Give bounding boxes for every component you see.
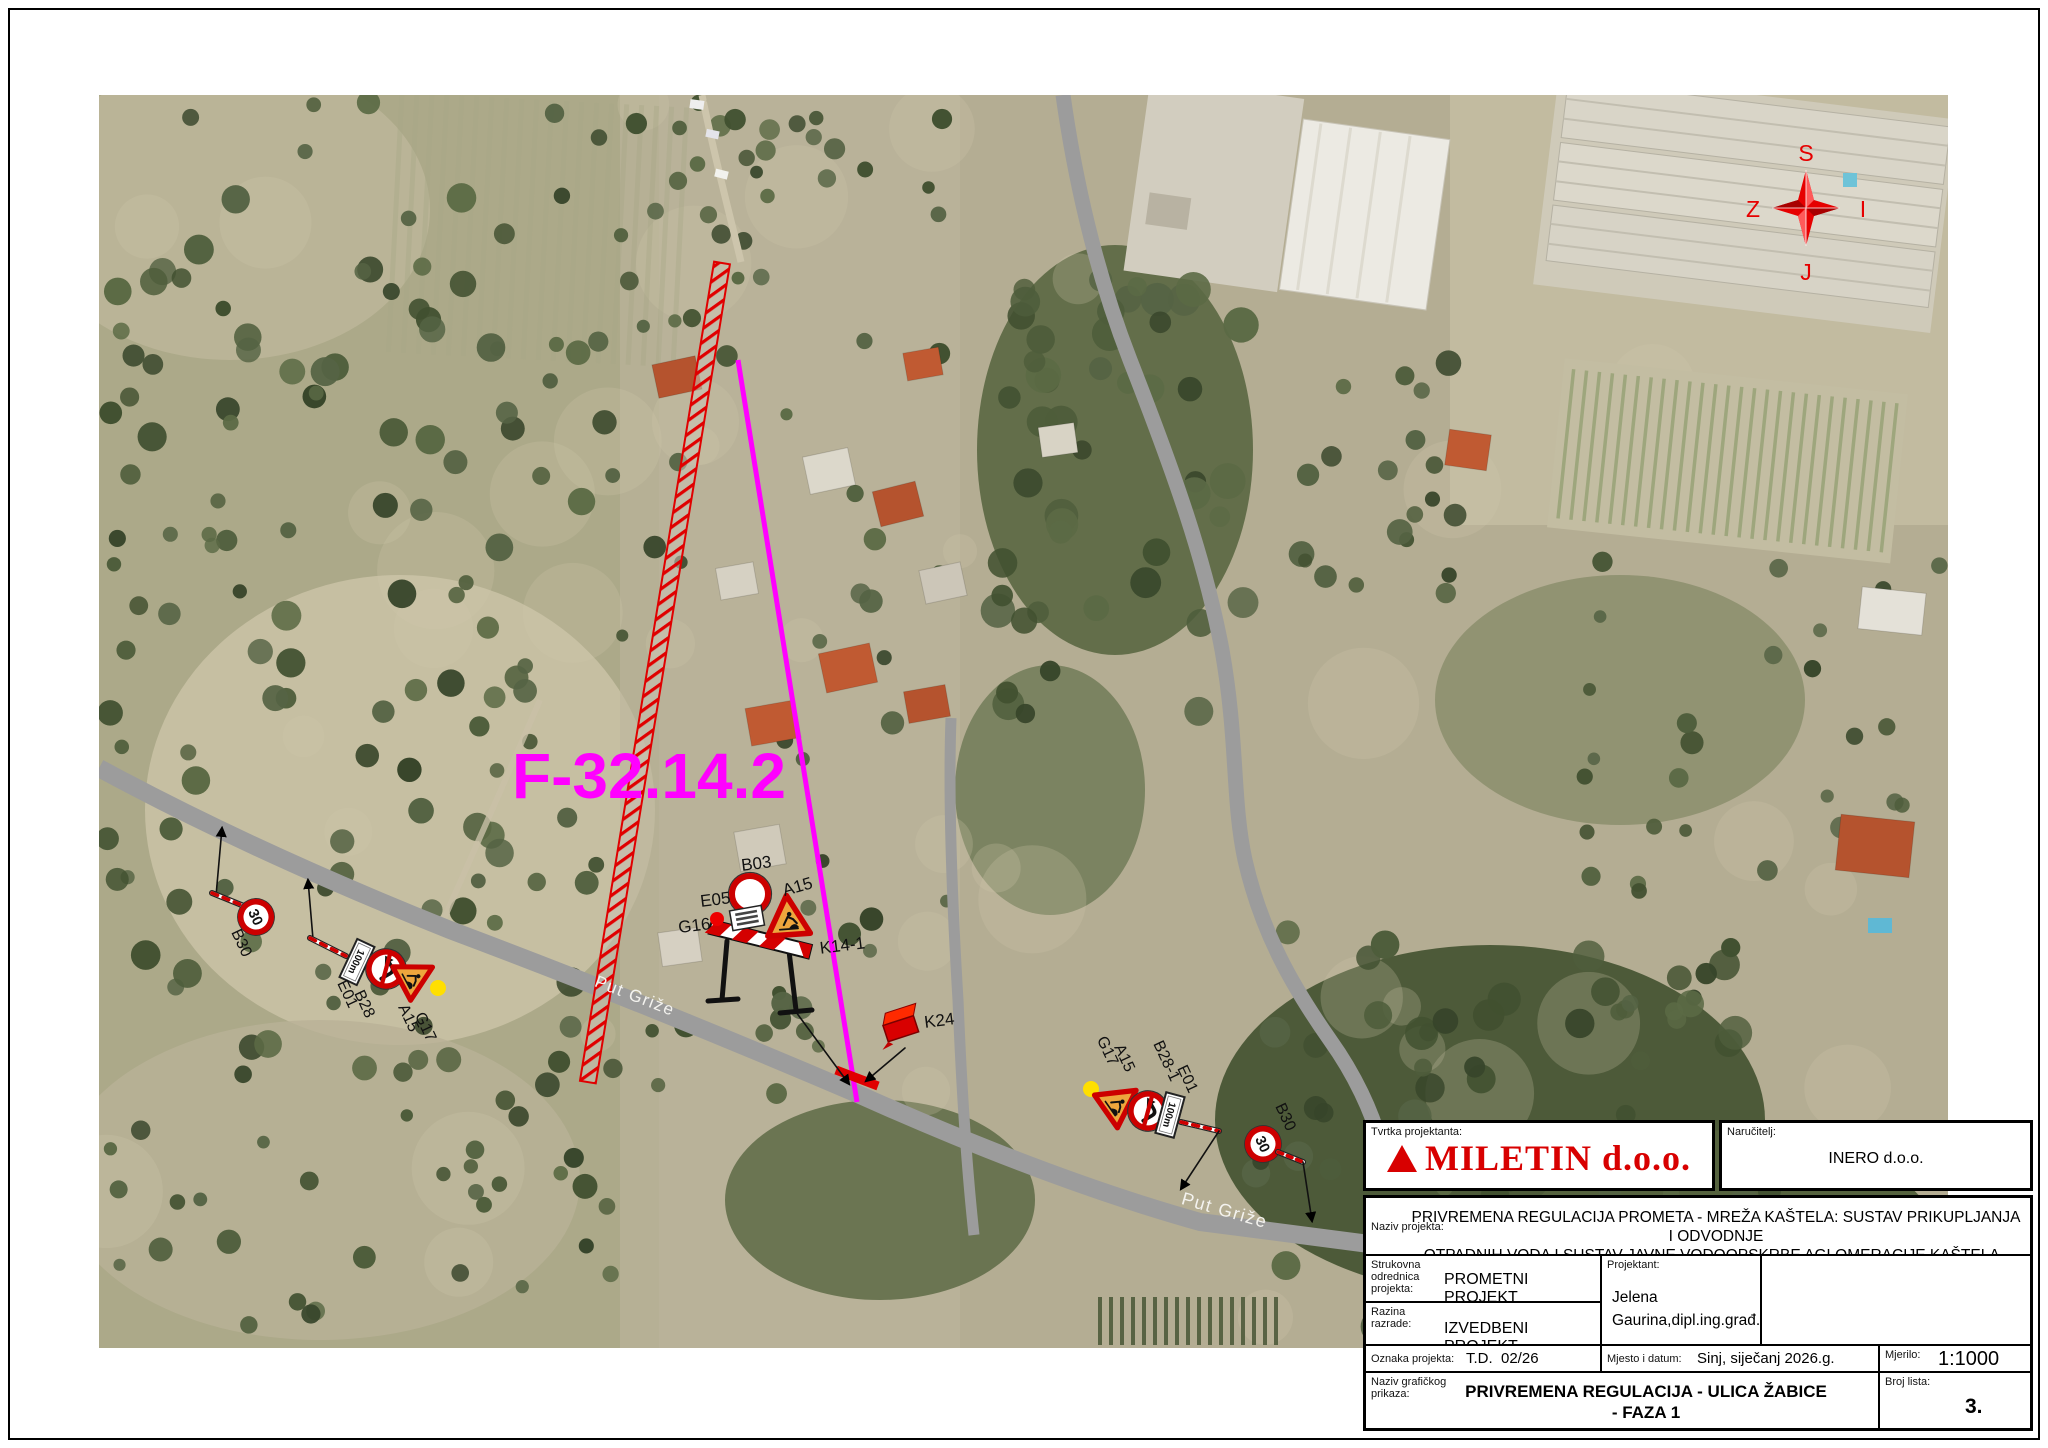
- tree: [1013, 468, 1042, 497]
- tree: [383, 283, 400, 300]
- tree: [1314, 565, 1337, 588]
- design-level-label: Razina razrade:: [1371, 1306, 1431, 1330]
- tree: [1565, 1009, 1594, 1038]
- tree: [300, 1172, 319, 1191]
- tree: [588, 857, 604, 873]
- tree: [1804, 660, 1821, 677]
- tree: [560, 1016, 582, 1038]
- tree: [184, 235, 214, 265]
- tree: [991, 585, 1013, 607]
- client-name: INERO d.o.o.: [1722, 1150, 2030, 1168]
- tree: [490, 763, 505, 778]
- compass-north-label: S: [1798, 140, 1813, 166]
- tree: [309, 386, 324, 401]
- tree: [568, 488, 595, 515]
- tree: [1260, 1017, 1291, 1048]
- tree: [1026, 325, 1054, 353]
- tree: [988, 548, 1018, 578]
- tree: [113, 1259, 125, 1271]
- tree: [436, 1167, 450, 1181]
- tree: [166, 889, 192, 915]
- tree: [1414, 382, 1430, 398]
- tree: [1667, 1010, 1686, 1029]
- tree: [123, 345, 145, 367]
- tree: [138, 422, 167, 451]
- tree: [485, 839, 514, 868]
- tree: [857, 162, 873, 178]
- works-section-label: F-32.14.2: [512, 740, 786, 812]
- tree: [548, 1051, 570, 1073]
- tree: [401, 1109, 413, 1121]
- tree: [1387, 519, 1413, 545]
- tree: [1128, 277, 1147, 296]
- tree: [1223, 307, 1258, 342]
- tree: [528, 873, 546, 891]
- tree: [107, 557, 121, 571]
- tree: [380, 418, 408, 446]
- place-date-value: Sinj, siječanj 2026.g.: [1697, 1350, 1835, 1367]
- tree: [436, 1047, 461, 1072]
- tree: [1441, 567, 1456, 582]
- tree: [712, 225, 731, 244]
- engineer-name-line1: Jelena: [1612, 1286, 1760, 1309]
- tree: [1304, 1096, 1328, 1120]
- tree: [353, 1246, 376, 1269]
- tree: [579, 1238, 594, 1253]
- tree: [645, 1024, 658, 1037]
- tree: [753, 269, 770, 286]
- tree: [931, 206, 947, 222]
- tree: [1083, 595, 1109, 621]
- tree: [1011, 607, 1037, 633]
- tree: [516, 1280, 529, 1293]
- tree: [535, 1072, 560, 1097]
- tree: [1436, 350, 1462, 376]
- drawing-title-line2: - FAZA 1: [1426, 1402, 1866, 1423]
- tree: [1436, 583, 1456, 603]
- tree: [120, 387, 139, 406]
- title-block-main: Naziv projekta: PRIVREMENA REGULACIJA PR…: [1363, 1195, 2033, 1431]
- tree: [172, 268, 192, 288]
- tree: [573, 1174, 598, 1199]
- tree: [419, 316, 445, 342]
- tree: [149, 1238, 173, 1262]
- compass-west-label: Z: [1746, 196, 1760, 222]
- tree: [397, 758, 421, 782]
- tree: [210, 493, 225, 508]
- tree: [1272, 1251, 1301, 1280]
- tree: [248, 639, 273, 664]
- tree: [106, 868, 129, 891]
- tree: [1364, 1001, 1392, 1029]
- tree: [485, 534, 513, 562]
- tree: [131, 940, 161, 970]
- tree: [352, 1056, 377, 1081]
- tree: [1178, 377, 1203, 402]
- tree: [1010, 287, 1040, 317]
- tree: [311, 357, 340, 386]
- tree: [889, 86, 975, 172]
- tree: [464, 1159, 478, 1173]
- tree: [487, 915, 503, 931]
- tree: [543, 373, 558, 388]
- building: [1835, 814, 1914, 877]
- tree: [466, 1140, 485, 1159]
- tree: [1406, 430, 1426, 450]
- sign-label-b03: B03: [740, 852, 772, 875]
- tree: [732, 272, 745, 285]
- tree: [508, 1106, 528, 1126]
- tree: [1677, 713, 1697, 733]
- tree: [408, 798, 434, 824]
- tree: [1588, 753, 1601, 766]
- tree: [549, 337, 564, 352]
- tree: [1894, 798, 1909, 813]
- tree: [469, 716, 489, 736]
- tree: [424, 1228, 493, 1297]
- company-logo: MILETIN d.o.o.: [1425, 1138, 1691, 1178]
- tree: [496, 402, 518, 424]
- tree: [1209, 506, 1230, 527]
- tree: [1764, 646, 1782, 664]
- tree: [131, 1121, 150, 1140]
- tree: [283, 716, 325, 758]
- tree: [140, 268, 167, 295]
- tree: [410, 499, 432, 521]
- engineer-label: Projektant:: [1607, 1259, 1660, 1271]
- tree: [1878, 718, 1895, 735]
- tree: [306, 97, 321, 112]
- tree: [326, 996, 340, 1010]
- tree: [846, 485, 863, 502]
- tree: [330, 829, 354, 853]
- tree: [789, 115, 806, 132]
- sheet-number-value: 3.: [1965, 1395, 1983, 1419]
- tree: [1336, 379, 1351, 394]
- tree: [1696, 963, 1717, 984]
- tree: [217, 1230, 241, 1254]
- tree: [372, 700, 394, 722]
- tree: [1931, 557, 1948, 574]
- tree: [1631, 883, 1647, 899]
- tree: [1210, 463, 1246, 499]
- tree: [647, 203, 664, 220]
- tree: [158, 603, 180, 625]
- tree: [683, 309, 701, 327]
- tree: [416, 425, 445, 454]
- tree: [104, 278, 132, 306]
- tree: [1143, 538, 1171, 566]
- building: [903, 347, 943, 381]
- tree: [280, 522, 296, 538]
- tree: [1821, 789, 1834, 802]
- tree: [315, 964, 331, 980]
- tree: [856, 333, 872, 349]
- tree: [1297, 464, 1319, 486]
- tree: [1349, 577, 1364, 592]
- tree: [104, 1142, 117, 1155]
- project-name-line1: PRIVREMENA REGULACIJA PROMETA - MREŽA KA…: [1411, 1208, 2021, 1246]
- tree: [301, 1304, 320, 1323]
- tree: [812, 634, 827, 649]
- discipline-value: PROMETNI PROJEKT: [1444, 1271, 1600, 1307]
- compass-east-label: I: [1860, 196, 1866, 222]
- tree: [163, 527, 178, 542]
- tree: [591, 129, 607, 145]
- pool: [1868, 918, 1892, 933]
- tree: [1040, 661, 1061, 682]
- tree: [354, 263, 371, 280]
- tree: [170, 1194, 186, 1210]
- tree: [553, 1166, 568, 1181]
- tree: [1473, 999, 1504, 1030]
- tree: [575, 871, 599, 895]
- tree: [545, 104, 564, 123]
- tree: [1024, 351, 1046, 373]
- tree: [1319, 1158, 1341, 1180]
- tree: [492, 1176, 507, 1191]
- building: [1858, 587, 1926, 635]
- tree: [1184, 697, 1213, 726]
- tree: [672, 121, 687, 136]
- tree: [257, 1136, 270, 1149]
- tree: [1669, 768, 1689, 788]
- tree: [182, 109, 199, 126]
- tree: [271, 601, 301, 631]
- tree: [599, 1198, 616, 1215]
- tree: [1321, 446, 1342, 467]
- tree: [459, 575, 474, 590]
- engineer-name-line2: Gaurina,dipl.ing.građ.: [1612, 1309, 1760, 1332]
- warning-lamp: [430, 980, 446, 996]
- tree: [1425, 492, 1440, 507]
- tree: [1804, 1045, 1891, 1132]
- tree: [859, 589, 882, 612]
- tree: [824, 138, 845, 159]
- tree: [915, 815, 973, 873]
- tree: [233, 584, 247, 598]
- tree: [222, 185, 250, 213]
- tree: [443, 450, 467, 474]
- tree: [1579, 825, 1594, 840]
- tree: [690, 156, 706, 172]
- tree: [388, 580, 417, 609]
- tree: [1646, 819, 1662, 835]
- tree: [755, 1024, 773, 1042]
- tree: [484, 686, 506, 708]
- tree: [700, 206, 717, 223]
- sheet-number-label: Broj lista:: [1885, 1376, 1930, 1388]
- tree: [477, 333, 506, 362]
- place-date-label: Mjesto i datum:: [1607, 1353, 1682, 1365]
- tree: [1577, 768, 1593, 784]
- tree: [182, 766, 211, 795]
- tree: [602, 1266, 618, 1282]
- tree: [1176, 272, 1211, 307]
- tree: [1631, 1051, 1650, 1070]
- tree: [1414, 1059, 1432, 1077]
- tree: [523, 563, 623, 663]
- tree: [1757, 860, 1778, 881]
- title-block: Tvrtka projektanta: MILETIN d.o.o. Naruč…: [1363, 1120, 2033, 1431]
- tree: [637, 320, 650, 333]
- logo-triangle-icon: [1387, 1145, 1417, 1172]
- tree: [517, 658, 533, 674]
- tree: [357, 91, 380, 114]
- tree: [1426, 456, 1444, 474]
- tree: [668, 314, 681, 327]
- tree: [447, 183, 477, 213]
- tree: [193, 1192, 207, 1206]
- tree: [780, 408, 792, 420]
- tree: [159, 817, 182, 840]
- tree: [996, 682, 1018, 704]
- building: [904, 685, 951, 724]
- tree: [393, 1062, 412, 1081]
- tree: [1622, 995, 1639, 1012]
- empty-cell: [1762, 1256, 2030, 1346]
- tree: [496, 1090, 516, 1110]
- tree: [413, 258, 431, 276]
- tree: [1594, 610, 1607, 623]
- project-code-value: T.D. 02/26: [1466, 1350, 1539, 1367]
- tree: [1464, 1057, 1485, 1078]
- tree: [1679, 824, 1692, 837]
- tree: [922, 181, 935, 194]
- tree: [97, 700, 122, 725]
- tree: [401, 211, 417, 227]
- tree: [110, 1180, 128, 1198]
- tree: [809, 111, 823, 125]
- tree: [1591, 977, 1620, 1006]
- tree: [564, 1148, 584, 1168]
- tree: [1378, 460, 1398, 480]
- tree: [592, 410, 616, 434]
- tree: [588, 331, 608, 351]
- tree: [1581, 867, 1600, 886]
- sign-label-e05: E05: [699, 888, 731, 911]
- discipline-label: Strukovna odrednica projekta:: [1371, 1259, 1441, 1295]
- tree: [1714, 801, 1794, 881]
- tree: [99, 402, 122, 425]
- tree: [356, 744, 379, 767]
- tree: [1592, 552, 1612, 572]
- lamp-g16: [710, 912, 724, 926]
- tree: [1667, 965, 1692, 990]
- tree: [806, 129, 822, 145]
- tree: [1130, 567, 1161, 598]
- designer-box: Tvrtka projektanta: MILETIN d.o.o.: [1363, 1120, 1715, 1191]
- building: [1445, 429, 1492, 470]
- tree: [1406, 506, 1423, 523]
- tree: [448, 587, 464, 603]
- tree: [409, 299, 430, 320]
- tree: [494, 223, 515, 244]
- tree: [566, 340, 591, 365]
- tree: [113, 323, 130, 340]
- tree: [234, 1065, 252, 1083]
- scale-value: 1:1000: [1938, 1348, 1999, 1371]
- tree: [120, 464, 140, 484]
- tree: [860, 907, 884, 931]
- tree: [1415, 1073, 1444, 1102]
- pool: [1843, 173, 1857, 187]
- tree: [759, 119, 780, 140]
- tree: [881, 711, 904, 734]
- tree: [1583, 683, 1596, 696]
- building: [1038, 423, 1078, 458]
- tree: [1846, 728, 1863, 745]
- tree: [800, 900, 816, 916]
- tree: [1049, 520, 1072, 543]
- tree: [1813, 623, 1827, 637]
- tree: [554, 188, 570, 204]
- tree: [1395, 366, 1414, 385]
- tree: [998, 386, 1020, 408]
- tree: [408, 1050, 428, 1070]
- tree: [818, 169, 836, 187]
- tree: [1433, 1008, 1459, 1034]
- tree: [115, 740, 130, 755]
- tree: [276, 648, 305, 677]
- tree: [1721, 938, 1740, 957]
- tree: [1298, 553, 1312, 567]
- tree: [898, 912, 957, 971]
- tree: [1371, 930, 1400, 959]
- scale-label: Mjerilo:: [1885, 1349, 1920, 1361]
- tree: [1444, 504, 1467, 527]
- tree: [142, 354, 163, 375]
- tree: [205, 538, 220, 553]
- tree: [254, 1030, 282, 1058]
- tree: [468, 1184, 484, 1200]
- drawing-title-line1: PRIVREMENA REGULACIJA - ULICA ŽABICE: [1426, 1381, 1866, 1402]
- tree: [262, 685, 288, 711]
- compass-south-label: J: [1800, 259, 1812, 285]
- tree: [724, 109, 745, 130]
- sign-label-g16: G16: [677, 914, 711, 937]
- project-code-label: Oznaka projekta:: [1371, 1353, 1454, 1365]
- tree: [279, 359, 305, 385]
- tree: [215, 301, 230, 316]
- sign-label-k24: K24: [923, 1009, 955, 1032]
- tree: [96, 827, 119, 850]
- tree: [877, 650, 892, 665]
- tree: [978, 845, 1086, 953]
- tree: [1573, 940, 1605, 972]
- building: [716, 562, 759, 600]
- tree: [1016, 704, 1035, 723]
- tree: [437, 669, 464, 696]
- tree: [240, 1316, 257, 1333]
- tree: [236, 337, 261, 362]
- tree: [760, 189, 774, 203]
- tree: [513, 679, 537, 703]
- tree: [115, 194, 179, 258]
- tree: [605, 468, 620, 483]
- tree: [129, 596, 148, 615]
- tree: [1769, 559, 1788, 578]
- tree: [716, 345, 738, 367]
- tree: [766, 1083, 787, 1104]
- tree: [297, 144, 312, 159]
- tree: [616, 630, 628, 642]
- tree: [180, 744, 196, 760]
- tree: [173, 959, 202, 988]
- tree: [1228, 587, 1259, 618]
- tree: [603, 1059, 622, 1078]
- tree: [651, 1078, 665, 1092]
